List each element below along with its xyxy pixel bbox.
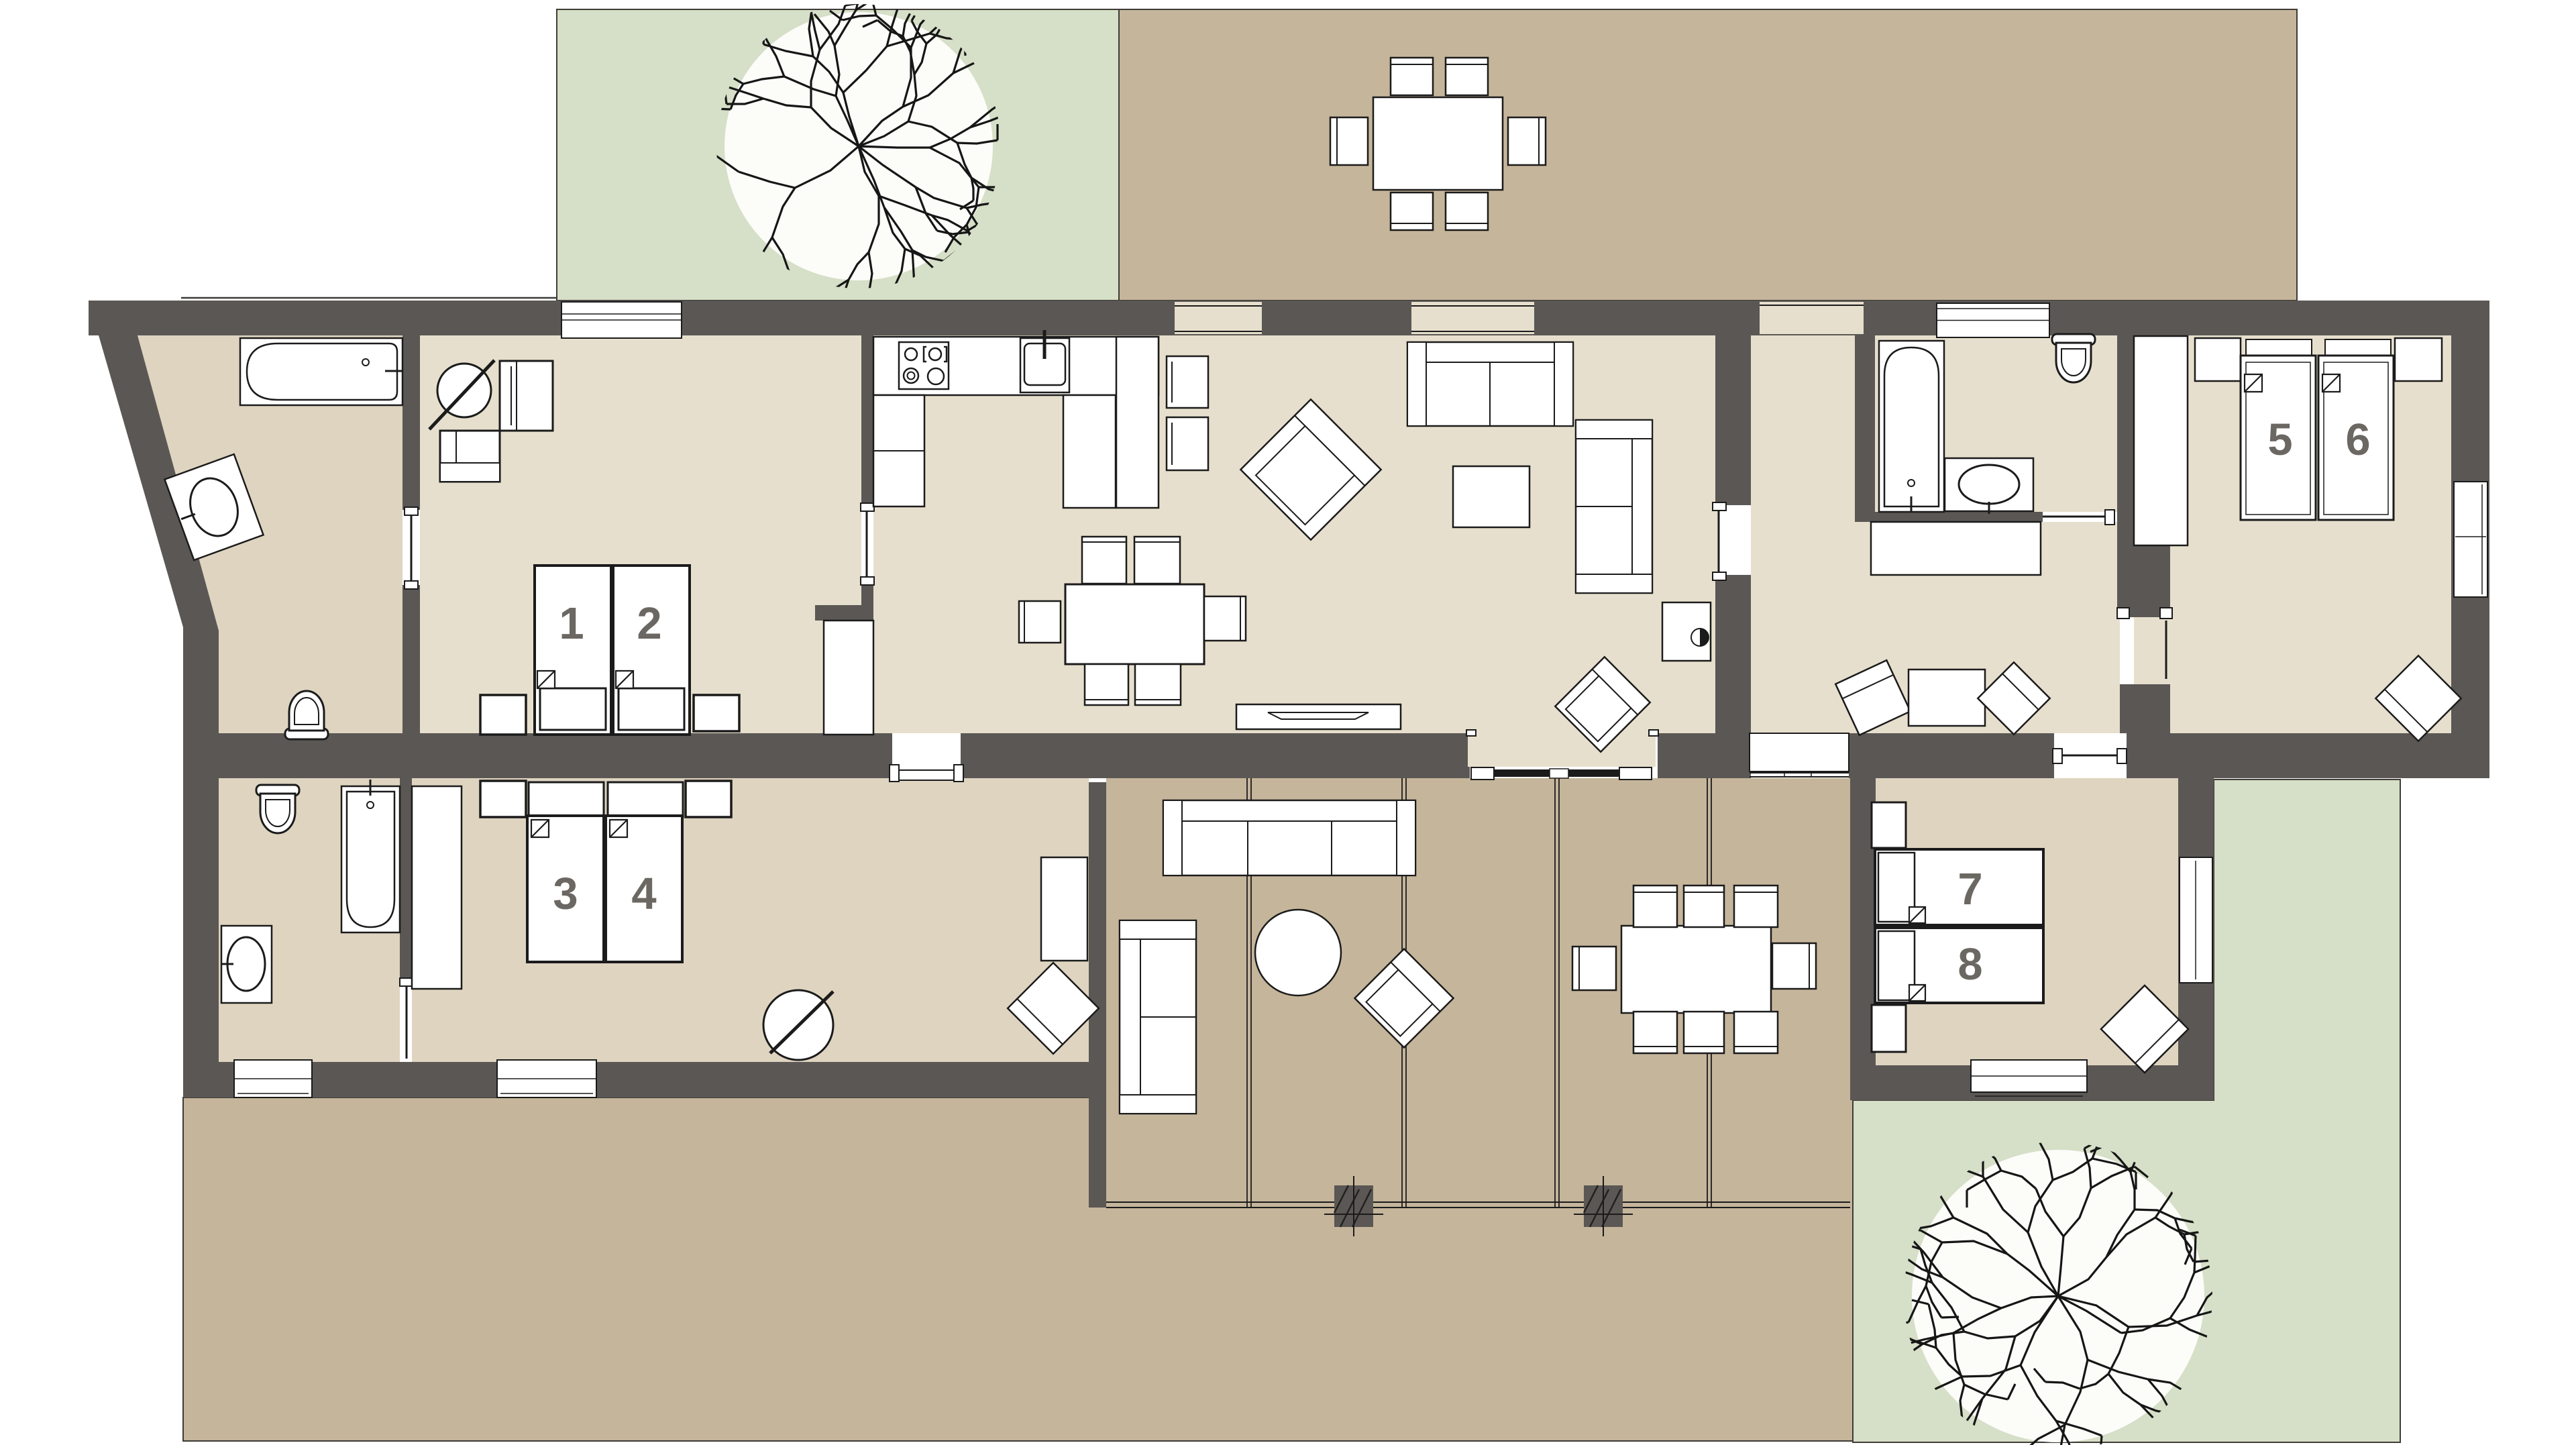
svg-text:2: 2 [637,598,661,649]
svg-text:8: 8 [1957,939,1982,989]
svg-text:3: 3 [553,869,578,919]
svg-text:5: 5 [2267,415,2292,465]
svg-text:1: 1 [559,598,584,649]
svg-text:7: 7 [1957,864,1982,914]
svg-text:4: 4 [631,869,656,919]
svg-text:6: 6 [2345,415,2370,465]
